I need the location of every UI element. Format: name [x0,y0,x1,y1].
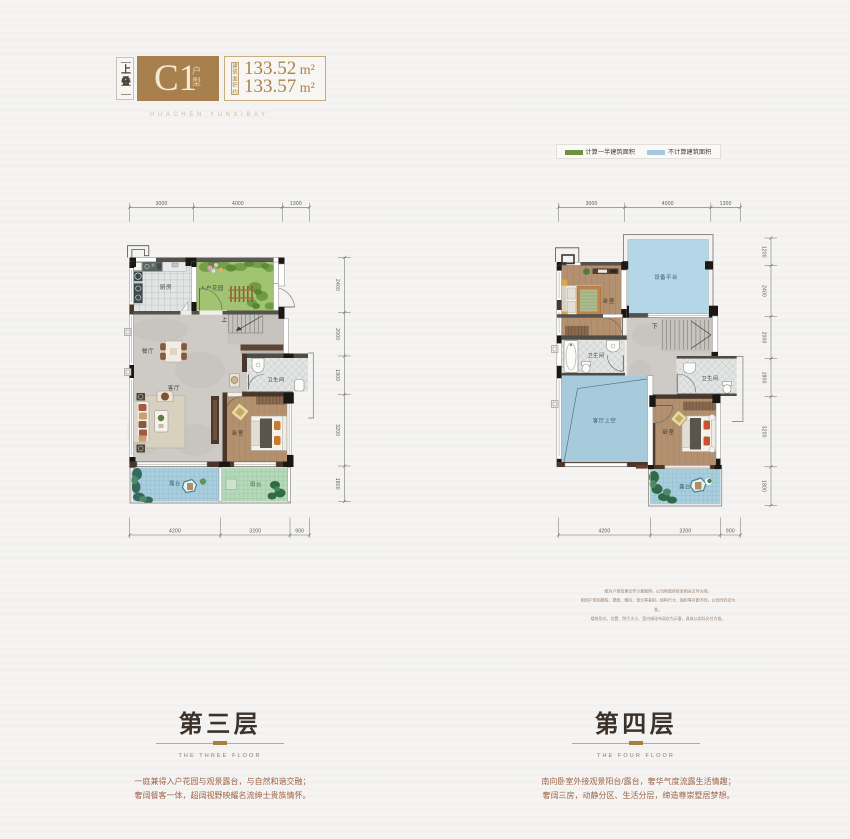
svg-text:3200: 3200 [249,529,261,535]
svg-text:餐厅: 餐厅 [142,347,154,355]
svg-text:4000: 4000 [662,201,674,207]
svg-text:2000: 2000 [761,332,767,344]
svg-text:卧室: 卧室 [663,428,675,436]
svg-text:露台: 露台 [169,479,180,487]
svg-text:3200: 3200 [334,424,340,436]
svg-text:4200: 4200 [598,529,610,535]
svg-text:3000: 3000 [586,201,598,207]
svg-text:1800: 1800 [334,369,340,381]
svg-text:1300: 1300 [720,201,732,207]
svg-text:阳台: 阳台 [250,480,261,488]
svg-text:客厅上空: 客厅上空 [593,417,617,425]
svg-text:1800: 1800 [761,480,767,492]
svg-text:900: 900 [726,529,735,535]
svg-text:3000: 3000 [156,201,168,207]
svg-text:2000: 2000 [334,328,340,340]
svg-text:客厅: 客厅 [168,384,180,392]
svg-text:卫生间: 卫生间 [701,374,718,382]
svg-text:4000: 4000 [232,201,244,207]
svg-text:设备平台: 设备平台 [654,273,678,281]
svg-text:下: 下 [652,324,659,331]
svg-text:4200: 4200 [169,529,181,535]
svg-text:1800: 1800 [334,478,340,490]
svg-text:3200: 3200 [761,426,767,438]
svg-text:卫生间: 卫生间 [267,376,284,384]
svg-text:入户花园: 入户花园 [200,284,224,292]
svg-text:1800: 1800 [761,372,767,384]
svg-text:厨房: 厨房 [160,283,172,291]
svg-text:2400: 2400 [334,279,340,291]
svg-text:1200: 1200 [761,246,767,258]
svg-text:上: 上 [221,316,228,324]
svg-text:900: 900 [295,529,304,535]
svg-text:卧室: 卧室 [232,429,244,437]
svg-text:1300: 1300 [290,201,302,207]
svg-text:卧室: 卧室 [603,297,615,305]
svg-text:2400: 2400 [761,285,767,297]
svg-text:3200: 3200 [679,529,691,535]
svg-text:卫生间: 卫生间 [587,351,604,359]
svg-text:露台: 露台 [679,483,690,491]
